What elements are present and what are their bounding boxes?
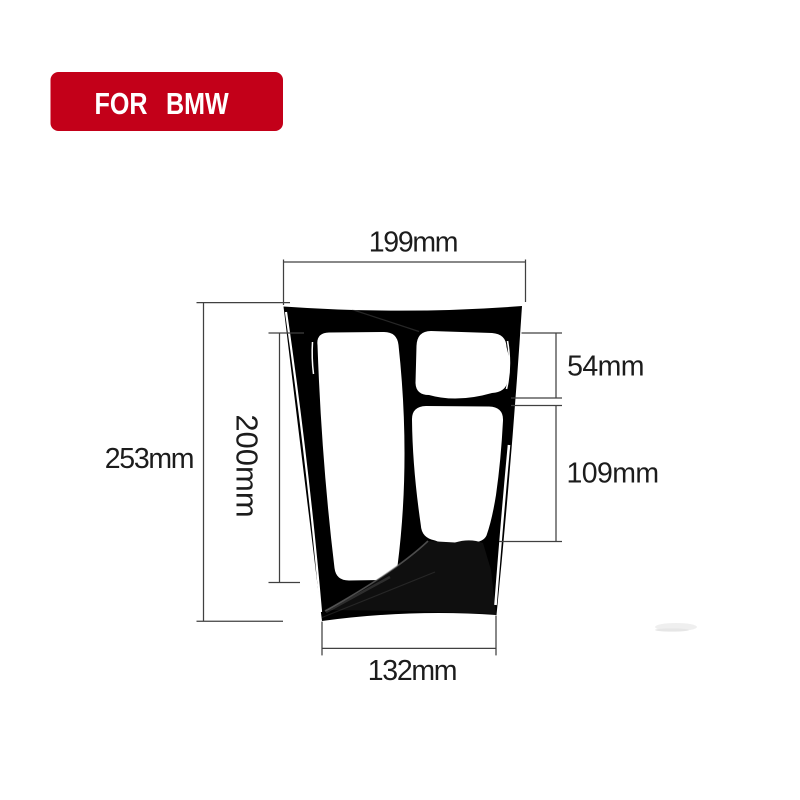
svg-text:199mm: 199mm [369, 227, 458, 259]
svg-text:200mm: 200mm [229, 414, 264, 517]
svg-text:54mm: 54mm [567, 351, 644, 383]
svg-text:BMW: BMW [166, 85, 229, 120]
svg-text:132mm: 132mm [368, 655, 457, 687]
svg-text:FOR: FOR [95, 85, 148, 120]
svg-text:253mm: 253mm [105, 443, 194, 475]
svg-text:109mm: 109mm [566, 458, 658, 490]
